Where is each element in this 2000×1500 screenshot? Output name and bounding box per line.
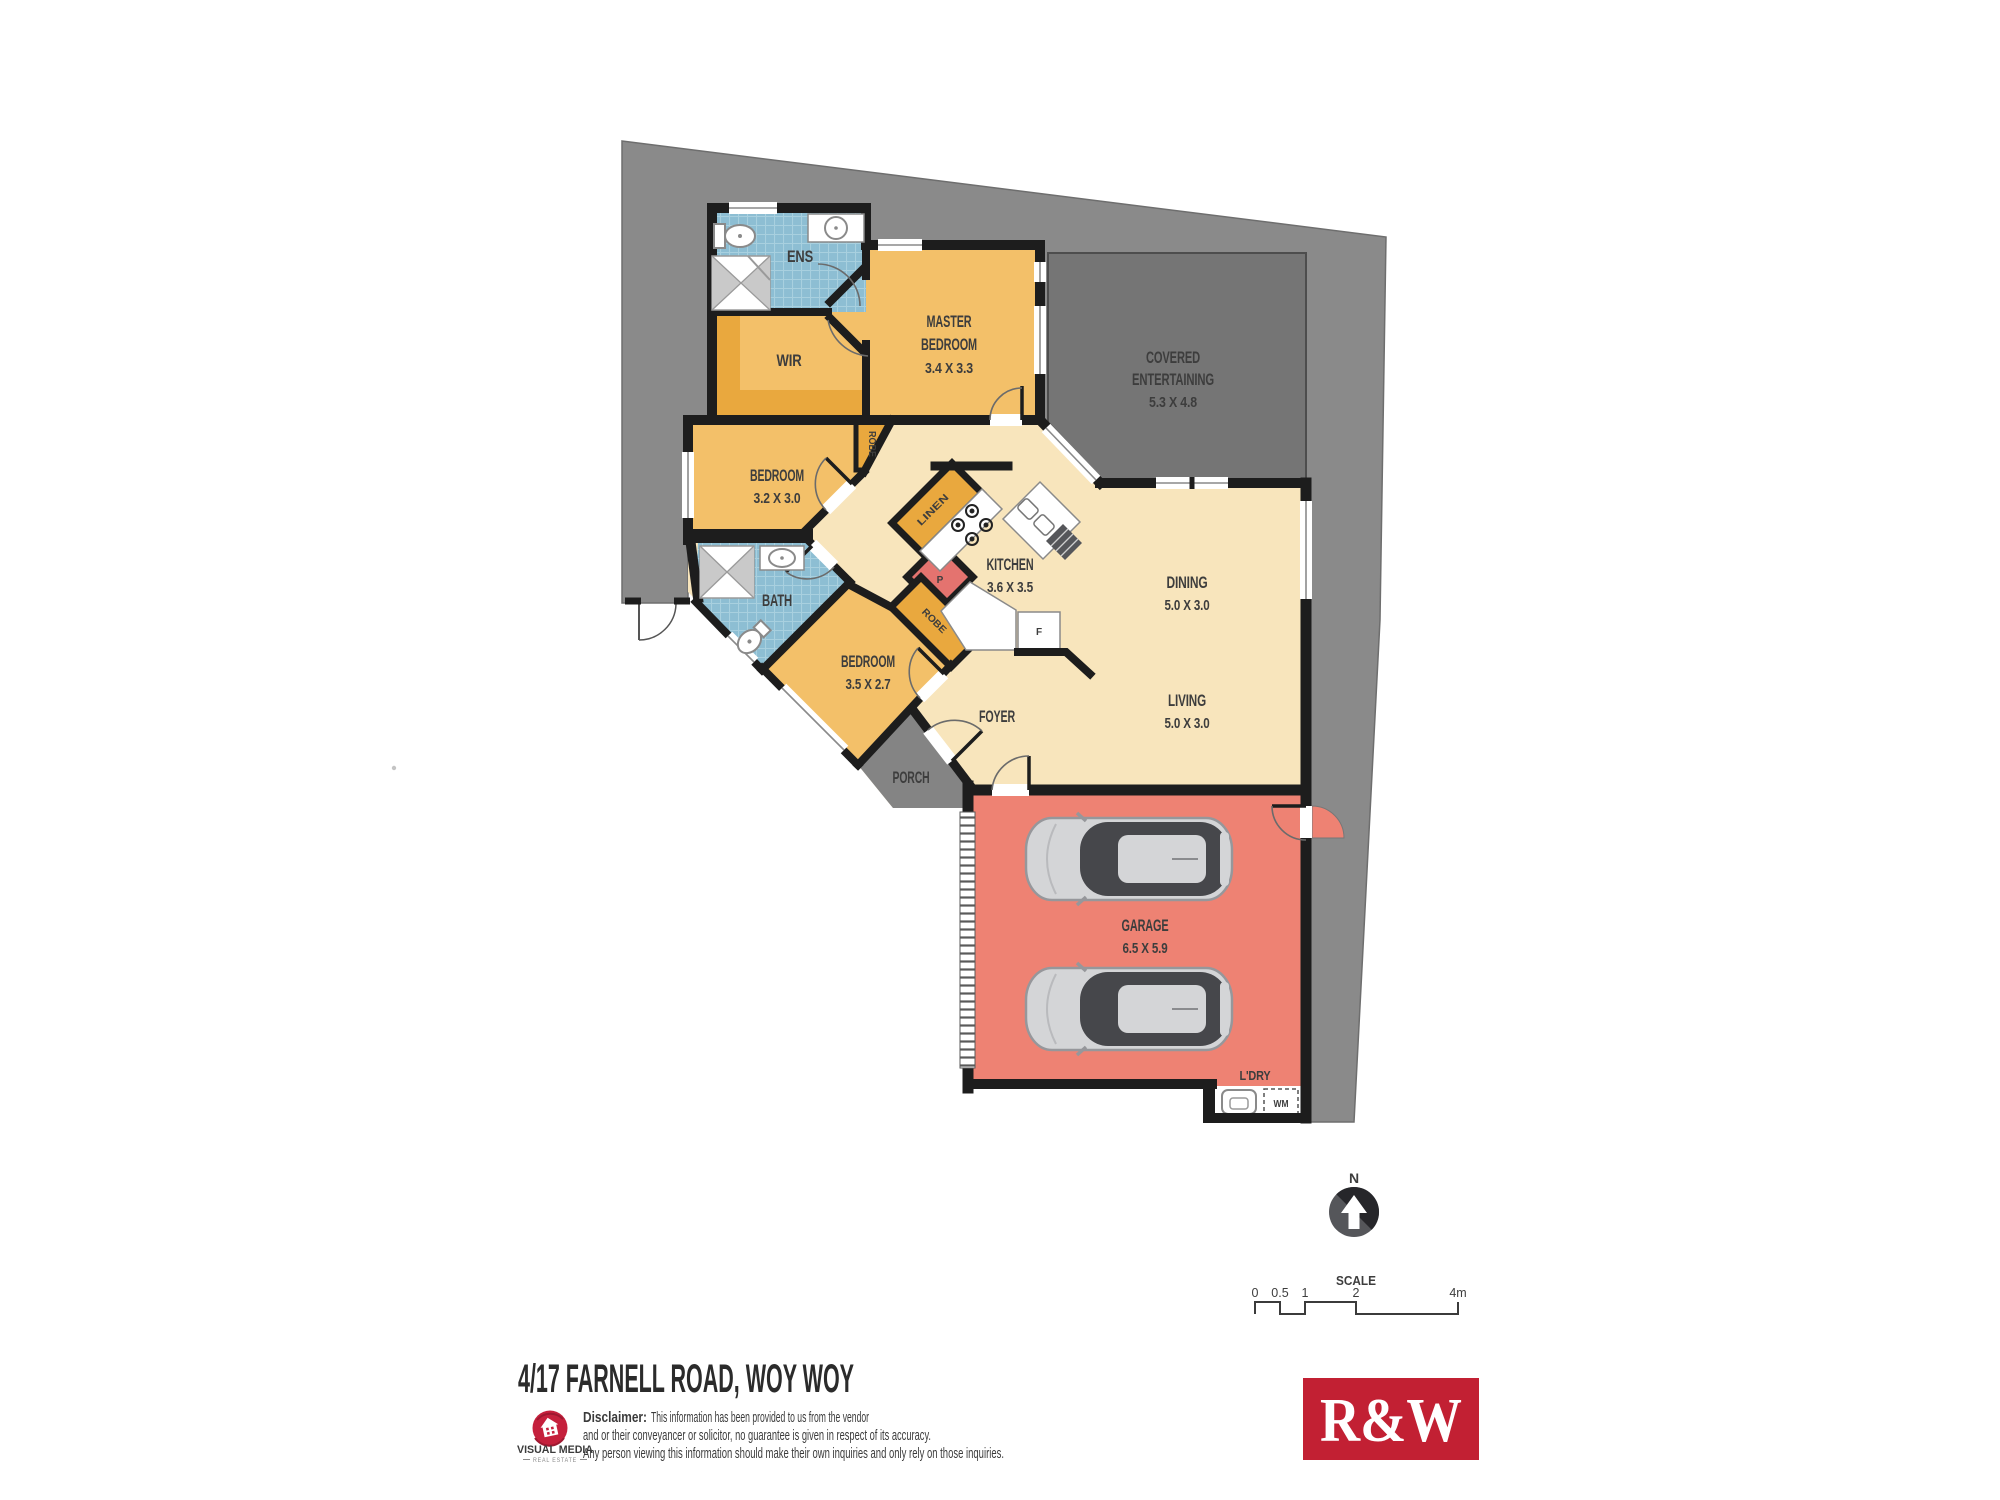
rw-logo: R&W [1303,1378,1479,1460]
label-master-1: MASTER [927,313,972,331]
room-master-bedroom [866,245,1040,420]
label-porch: PORCH [893,769,930,787]
svg-text:Disclaimer:This information ha: Disclaimer:This information has been pro… [583,1409,869,1426]
label-bedroom3-dims: 3.5 X 2.7 [846,676,891,693]
label-bath: BATH [762,592,792,610]
scale-tick-4m: 4m [1449,1286,1466,1300]
visual-media-logo: VISUAL MEDIA REAL ESTATE [517,1411,593,1465]
label-master-2: BEDROOM [921,336,977,354]
floorplan-page: F WM [0,0,2000,1500]
label-garage: GARAGE [1122,917,1169,935]
car-icon [1026,963,1232,1055]
disclaimer-line-2: and or their conveyancer or solicitor, n… [583,1427,931,1444]
print-speck [392,766,396,770]
disclaimer-line-3: Any person viewing this information shou… [583,1445,1004,1462]
label-robe-bed2: ROBE [866,431,877,457]
label-entertaining-1: COVERED [1146,349,1200,367]
rw-logo-text: R&W [1320,1387,1462,1455]
label-garage-dims: 6.5 X 5.9 [1123,940,1168,957]
roller-door [960,812,975,1068]
scale-bar: SCALE 0 0.5 1 2 4m [1252,1273,1467,1314]
wir-shelf-bottom [712,390,864,418]
label-kitchen: KITCHEN [987,556,1034,574]
vm-logo-title: VISUAL MEDIA [517,1444,593,1456]
label-foyer: FOYER [979,708,1015,726]
scale-tick-2: 2 [1353,1286,1360,1300]
label-bedroom3: BEDROOM [841,653,895,671]
fridge-label: F [1036,627,1042,638]
vm-logo-subtitle: REAL ESTATE [533,1457,577,1464]
label-bedroom2: BEDROOM [750,467,804,485]
label-living: LIVING [1168,692,1206,710]
shower-icon [712,256,770,310]
label-kitchen-dims: 3.6 X 3.5 [987,579,1033,596]
scale-tick-0: 0 [1252,1286,1259,1300]
washing-machine-label: WM [1274,1099,1289,1110]
scale-tick-05: 0.5 [1271,1286,1288,1300]
fridge-icon: F [1018,612,1060,650]
label-entertaining-dims: 5.3 X 4.8 [1149,394,1197,411]
shower-icon [700,546,754,598]
label-dining: DINING [1167,574,1208,592]
room-covered-entertaining [1048,253,1306,483]
label-master-dims: 3.4 X 3.3 [925,360,973,377]
bath-sink-icon [760,546,804,570]
label-laundry: L'DRY [1240,1068,1271,1083]
disclaimer-label: Disclaimer: [583,1409,647,1426]
label-ens: ENS [787,248,813,266]
north-label: N [1349,1170,1359,1186]
laundry-area: WM [1212,1086,1302,1116]
label-living-dims: 5.0 X 3.0 [1165,715,1210,732]
boundary-gate [625,601,690,640]
north-arrow-icon: N [1329,1170,1379,1237]
disclaimer-line-1: This information has been provided to us… [651,1409,869,1426]
vanity-sink-icon [808,214,864,242]
toilet-icon [714,224,755,248]
page-title: 4/17 FARNELL ROAD, WOY WOY [518,1357,854,1401]
scale-tick-1: 1 [1302,1286,1309,1300]
car-icon [1026,813,1232,905]
floorplan-svg: F WM [0,0,2000,1500]
label-wir: WIR [777,352,802,370]
label-pantry: P [937,575,944,586]
label-dining-dims: 5.0 X 3.0 [1165,597,1210,614]
label-bedroom2-dims: 3.2 X 3.0 [754,490,801,507]
disclaimer: Disclaimer:This information has been pro… [583,1409,1004,1462]
label-entertaining-2: ENTERTAINING [1132,371,1214,389]
